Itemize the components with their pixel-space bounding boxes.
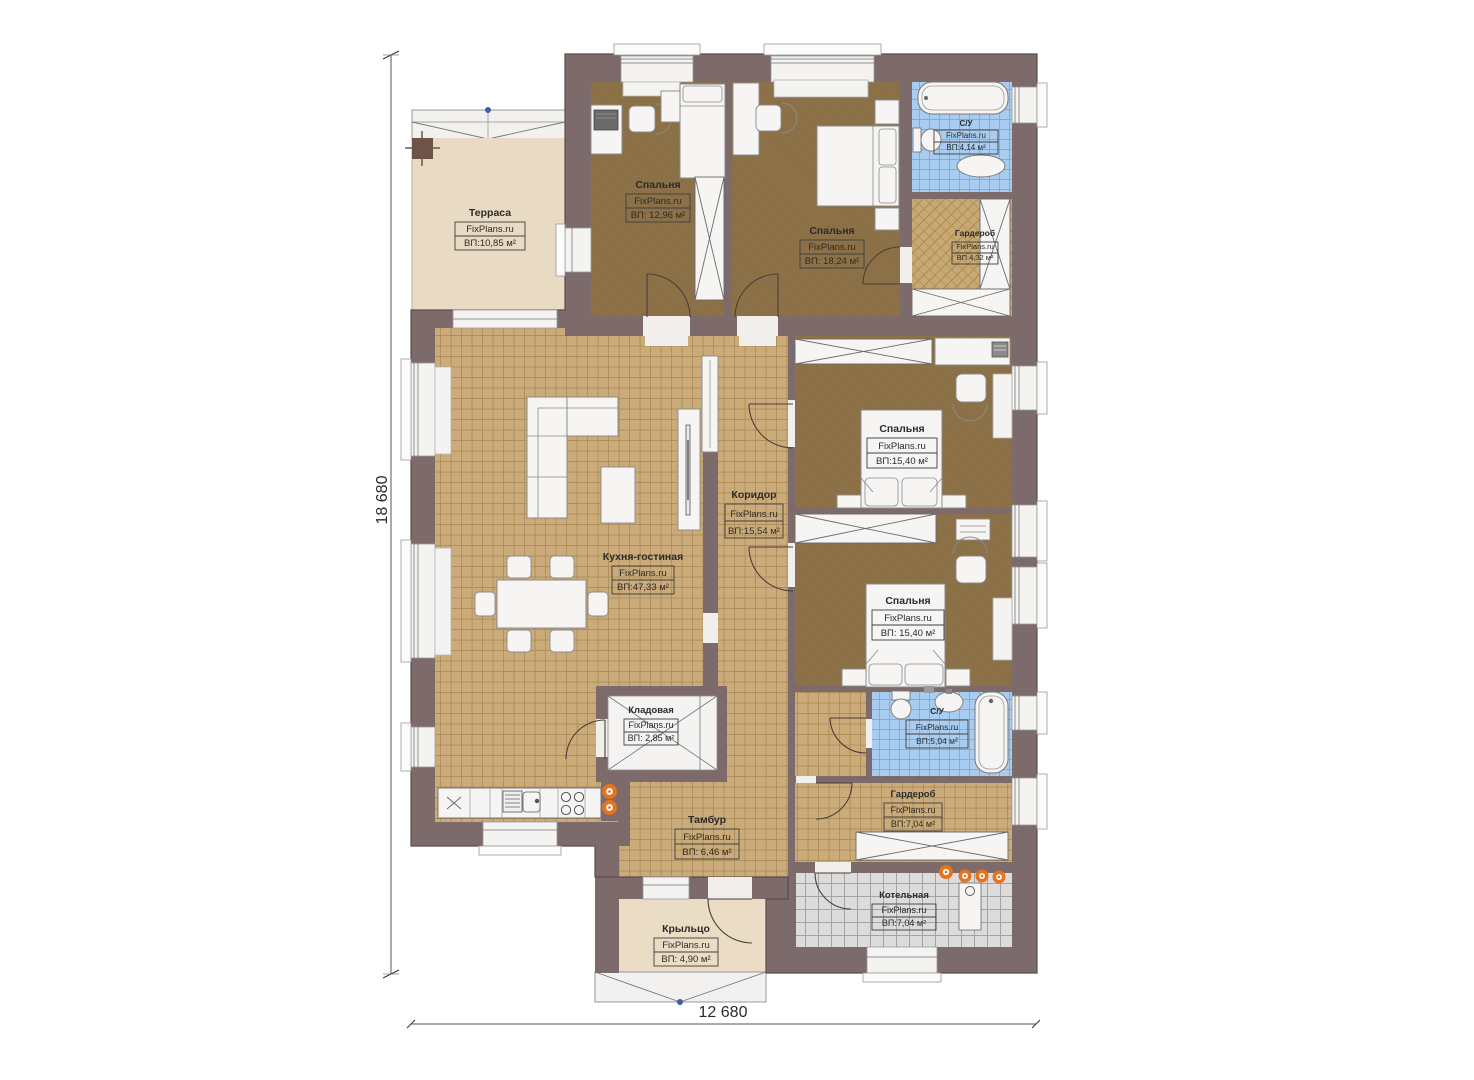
svg-text:FixPlans.ru: FixPlans.ru [946,131,986,140]
svg-text:ВП:5,04 м²: ВП:5,04 м² [916,736,958,746]
svg-text:ВП:47,33 м²: ВП:47,33 м² [617,582,669,593]
svg-text:Спальня: Спальня [635,179,680,191]
svg-text:Гардероб: Гардероб [891,789,936,800]
svg-text:FixPlans.ru: FixPlans.ru [916,722,959,732]
svg-text:ВП: 18,24 м²: ВП: 18,24 м² [805,256,860,267]
svg-text:FixPlans.ru: FixPlans.ru [890,805,935,815]
svg-text:Кладовая: Кладовая [628,705,674,716]
svg-text:12 680: 12 680 [699,1004,748,1021]
svg-text:ВП: 6,46 м²: ВП: 6,46 м² [682,847,731,858]
svg-text:ВП:4,14 м²: ВП:4,14 м² [946,143,986,152]
svg-text:ВП: 4,90 м²: ВП: 4,90 м² [661,954,710,965]
svg-text:Кухня-гостиная: Кухня-гостиная [603,551,683,563]
svg-text:ВП:10,85 м²: ВП:10,85 м² [464,238,516,249]
svg-text:FixPlans.ru: FixPlans.ru [683,832,731,843]
svg-text:FixPlans.ru: FixPlans.ru [881,905,926,915]
svg-text:ВП:7,04 м²: ВП:7,04 м² [882,918,926,928]
svg-text:ВП:4,32 м²: ВП:4,32 м² [957,253,994,262]
svg-text:ВП:15,40 м²: ВП:15,40 м² [876,456,928,467]
svg-text:ВП:15,54 м²: ВП:15,54 м² [728,526,780,537]
svg-text:ВП: 2,85 м²: ВП: 2,85 м² [628,733,675,743]
svg-text:ВП: 15,40 м²: ВП: 15,40 м² [881,628,936,639]
svg-text:Коридор: Коридор [731,489,776,501]
svg-text:FixPlans.ru: FixPlans.ru [956,242,994,251]
svg-text:Спальня: Спальня [809,225,854,237]
svg-text:Котельная: Котельная [879,890,929,901]
svg-text:FixPlans.ru: FixPlans.ru [808,242,856,253]
svg-text:ВП:7,04 м²: ВП:7,04 м² [891,819,935,829]
svg-text:FixPlans.ru: FixPlans.ru [628,720,673,730]
svg-text:Спальня: Спальня [879,423,924,435]
svg-text:С/У: С/У [960,119,974,128]
svg-text:FixPlans.ru: FixPlans.ru [884,613,932,624]
svg-text:Гардероб: Гардероб [955,228,995,238]
svg-text:ВП: 12,96 м²: ВП: 12,96 м² [631,210,686,221]
svg-text:Терраса: Терраса [469,207,511,219]
svg-text:Спальня: Спальня [885,595,930,607]
svg-text:Тамбур: Тамбур [688,814,726,826]
svg-text:FixPlans.ru: FixPlans.ru [634,196,682,207]
svg-text:FixPlans.ru: FixPlans.ru [466,224,514,235]
svg-text:Крыльцо: Крыльцо [662,923,710,935]
svg-text:FixPlans.ru: FixPlans.ru [730,509,778,520]
svg-text:FixPlans.ru: FixPlans.ru [619,568,667,579]
svg-text:С/У: С/У [930,706,945,716]
svg-text:FixPlans.ru: FixPlans.ru [662,940,710,951]
svg-text:FixPlans.ru: FixPlans.ru [878,441,926,452]
svg-text:18 680: 18 680 [374,475,391,524]
